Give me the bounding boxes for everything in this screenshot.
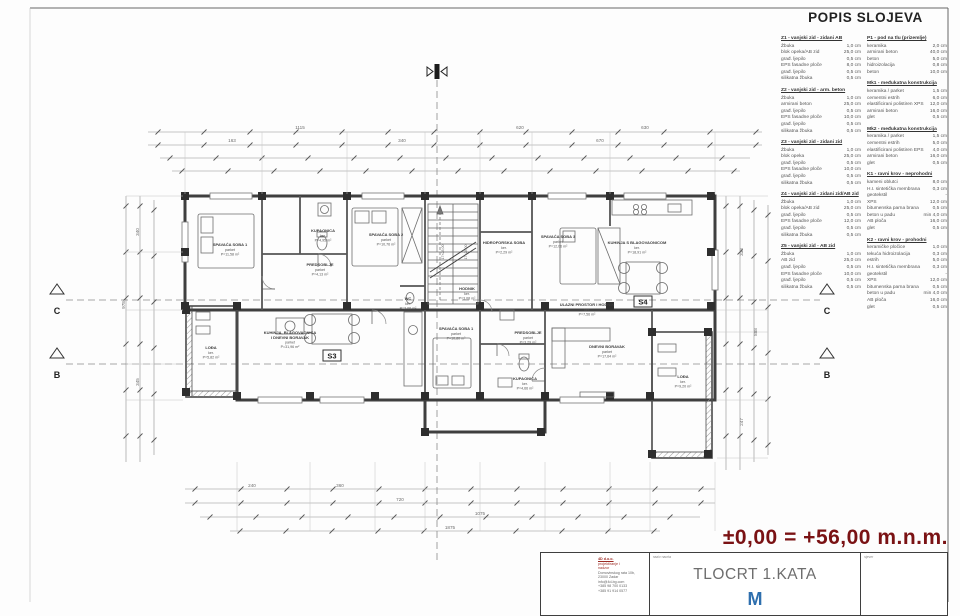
legend-item: armirani beton16,0 cm [867, 154, 947, 161]
svg-text:KUPAONICA: KUPAONICA [513, 376, 537, 381]
svg-text:P=3,29 m²: P=3,29 m² [520, 340, 537, 344]
legend-section-title: K1 - ravni krov - neprohodni [867, 172, 947, 179]
svg-text:KUHINJA S BLAGOVAONICOM: KUHINJA S BLAGOVAONICOM [608, 240, 667, 245]
svg-text:parket: parket [381, 238, 391, 242]
legend-section: Z2 - vanjski zid - arm. betonŽbuka1,0 cm… [781, 88, 861, 135]
svg-text:ker.: ker. [522, 382, 528, 386]
section-cut-icon [435, 64, 440, 79]
interior-walls [262, 196, 652, 400]
svg-text:17×28,00: 17×28,00 [464, 244, 468, 259]
svg-text:360: 360 [336, 483, 344, 488]
legend-item: armirani beton25,0 cm [781, 102, 861, 109]
room-label: SPAVAĆA SOBA 2parketP=10,76 m² [369, 232, 404, 246]
svg-text:1115: 1115 [295, 125, 305, 130]
legend-item: silikatna žbuka0,5 cm [781, 233, 861, 240]
svg-text:parket: parket [553, 240, 563, 244]
legend-item: građ. ljepilo0,5 cm [781, 226, 861, 233]
svg-text:333: 333 [739, 248, 744, 256]
svg-text:LOĐA: LOĐA [677, 374, 688, 379]
legend-item: keramičke pločice1,0 cm [867, 245, 947, 252]
room-label: HIDROFORSKA SOBAker.P=2,29 m² [483, 240, 525, 254]
legend-column-right: P1 - pod na tlu (prizemlje)keramika2,0 c… [867, 36, 947, 316]
legend-section-title: P1 - pod na tlu (prizemlje) [867, 36, 947, 43]
svg-text:340: 340 [398, 138, 406, 143]
svg-text:P=5,82 m²: P=5,82 m² [203, 355, 220, 359]
legend-section: K1 - ravni krov - neprohodnikameni oblut… [867, 172, 947, 232]
svg-text:340: 340 [135, 228, 140, 236]
company-contact: 4D d.o.o.projektiranje inadzorDomovinsko… [598, 557, 648, 593]
room-label: KUPAONICAker.P=4,66 m² [513, 376, 537, 390]
legend-item: glet0,5 cm [867, 226, 947, 233]
svg-text:ULAZNI PROSTOR I HODNIK: ULAZNI PROSTOR I HODNIK [560, 302, 615, 307]
svg-text:P=10,80 m²: P=10,80 m² [447, 336, 466, 340]
legend-item: elastificirani polistiren XPS12,0 cm [867, 102, 947, 109]
svg-text:P=11,58 m²: P=11,58 m² [221, 252, 240, 256]
elevation-note: ±0,00 = +56,00 m.n.m. [723, 526, 948, 550]
svg-text:888: 888 [753, 328, 758, 336]
svg-text:HODNIK: HODNIK [459, 286, 475, 291]
legend-item: AB zid25,0 cm [781, 258, 861, 265]
legend-item: građ. ljepilo0,5 cm [781, 174, 861, 181]
svg-text:WC: WC [405, 296, 412, 301]
room-label: SPAVAĆA SOBA 1parketP=11,58 m² [213, 242, 248, 256]
legend-item: blok opeka25,0 cm [781, 154, 861, 161]
legend-item: cementni estrih5,0 cm [867, 141, 947, 148]
legend-item: EPS fasadne ploče10,0 cm [781, 167, 861, 174]
legend-item: hidroizolacija0,8 cm [867, 63, 947, 70]
section-marker-c-left: C [54, 306, 61, 316]
legend-item: armirani beton40,0 cm [867, 50, 947, 57]
legend-section-title: K2 - ravni krov - prohodni [867, 238, 947, 245]
drawing-title: TLOCRT 1.KATA [650, 566, 860, 584]
room-label: KUHINJA S BLAGOVAONICOMker.P=18,91 m² [608, 240, 667, 254]
svg-text:SPAVAĆA SOBA 3: SPAVAĆA SOBA 3 [541, 234, 576, 239]
room-label: PREDSOBLJEparketP=3,29 m² [514, 330, 541, 344]
room-label: PREDSOBLJEparketP=4,13 m² [306, 262, 333, 276]
svg-text:978: 978 [121, 301, 126, 309]
stairs-dimension: 17×28,00 [441, 244, 445, 259]
svg-text:parket: parket [523, 336, 533, 340]
title-block-north-cell: sjever [861, 553, 947, 615]
svg-text:P=18,91 m²: P=18,91 m² [628, 250, 647, 254]
room-label: WCker.P=2,06 m² [400, 296, 417, 310]
legend-item: glet0,5 cm [867, 305, 947, 312]
svg-text:PREDSOBLJE: PREDSOBLJE [514, 330, 541, 335]
title-block-company-cell: 4D d.o.o.projektiranje inadzorDomovinsko… [541, 553, 650, 615]
legend-section-title: Z2 - vanjski zid - arm. beton [781, 88, 861, 95]
legend-item: EPS fasadne ploče10,0 cm [781, 115, 861, 122]
svg-text:345: 345 [135, 378, 140, 386]
svg-text:SPAVAĆA SOBA 1: SPAVAĆA SOBA 1 [439, 326, 474, 331]
legend-section-title: Z3 - vanjski zid - zidani zid [781, 140, 861, 147]
legend-title: POPIS SLOJEVA [788, 10, 943, 25]
svg-text:163: 163 [228, 138, 236, 143]
legend-section: Z3 - vanjski zid - zidani zidŽbuka1,0 cm… [781, 140, 861, 187]
legend-item: geotekstil- [867, 193, 947, 200]
svg-text:P=12,06 m²: P=12,06 m² [549, 244, 568, 248]
section-line-vertical [427, 64, 447, 560]
layers-legend: Z1 - vanjski zid - zidani ABŽbuka1,0 cmb… [781, 36, 947, 316]
section-marker-b-left: B [54, 370, 61, 380]
legend-item: glet0,5 cm [867, 115, 947, 122]
svg-text:P=10,76 m²: P=10,76 m² [377, 242, 396, 246]
svg-text:1075: 1075 [475, 511, 486, 516]
svg-text:S3: S3 [327, 352, 336, 361]
room-label: LOĐAker.P=9,20 m² [675, 374, 692, 388]
svg-text:P=4,13 m²: P=4,13 m² [312, 272, 329, 276]
svg-text:I DNEVNI BORAVAK: I DNEVNI BORAVAK [271, 335, 309, 340]
company-line: +385 91 914 0577 [598, 589, 648, 594]
svg-text:ker.: ker. [405, 302, 411, 306]
svg-text:ker.: ker. [464, 292, 470, 296]
svg-text:PREDSOBLJE: PREDSOBLJE [306, 262, 333, 267]
svg-text:parket: parket [225, 248, 235, 252]
room-label: DNEVNI BORAVAKparketP=17,64 m² [589, 344, 625, 358]
svg-text:LOĐA: LOĐA [205, 345, 216, 350]
legend-section: Z1 - vanjski zid - zidani ABŽbuka1,0 cmb… [781, 36, 861, 83]
legend-item: silikatna žbuka0,5 cm [781, 129, 861, 136]
svg-text:parket: parket [451, 332, 461, 336]
legend-item: silikatna žbuka0,5 cm [781, 285, 861, 292]
legend-section-title: Z1 - vanjski zid - zidani AB [781, 36, 861, 43]
legend-item: AB ploča16,0 cm [867, 298, 947, 305]
svg-text:S4: S4 [638, 298, 648, 307]
svg-text:P=9,20 m²: P=9,20 m² [675, 384, 692, 388]
furniture [196, 200, 692, 397]
unit-label-s4: S4 [634, 296, 652, 307]
legend-item: bitumenska parna brana0,5 cm [867, 206, 947, 213]
legend-item: građ. ljepilo0,5 cm [781, 122, 861, 129]
title-block-title-cell: naziv nacrta TLOCRT 1.KATA M [650, 553, 861, 615]
svg-text:ker.: ker. [501, 246, 507, 250]
section-marker-b-right: B [824, 370, 831, 380]
legend-item: beton10,0 cm [867, 70, 947, 77]
title-cell-label: naziv nacrta [653, 555, 671, 559]
svg-text:parket: parket [285, 341, 295, 345]
legend-item: kameni oblutci8,0 cm [867, 180, 947, 187]
legend-item: blok opeka/AB zid25,0 cm [781, 50, 861, 57]
svg-text:P=7,56 m²: P=7,56 m² [579, 312, 596, 316]
svg-text:ker.: ker. [208, 351, 214, 355]
legend-section-title: Z5 - vanjski zid - AB zid [781, 244, 861, 251]
legend-item: silikatna žbuka0,5 cm [781, 76, 861, 83]
legend-section: Mk2 - međukatna konstrukcijakeramika / p… [867, 127, 947, 167]
drawing-sheet: { "sheet": { "legend_title": "POPIS SLOJ… [0, 0, 960, 602]
room-label: KUPAONICAker.P=4,95 m² [311, 228, 335, 242]
svg-text:ker.: ker. [680, 380, 686, 384]
legend-item: estrih5,0 cm [867, 258, 947, 265]
legend-section: P1 - pod na tlu (prizemlje)keramika2,0 c… [867, 36, 947, 76]
svg-text:P=2,29 m²: P=2,29 m² [496, 250, 513, 254]
svg-text:SPAVAĆA SOBA 2: SPAVAĆA SOBA 2 [369, 232, 404, 237]
room-label: KUHINJA, BLAGOVAONICAI DNEVNI BORAVAKpar… [264, 330, 317, 349]
svg-text:P=4,66 m²: P=4,66 m² [517, 386, 534, 390]
legend-item: građ. ljepilo0,5 cm [781, 265, 861, 272]
svg-text:KUPAONICA: KUPAONICA [311, 228, 335, 233]
svg-text:parket: parket [315, 268, 325, 272]
legend-item: beton u padumin 4,0 cm [867, 291, 947, 298]
north-cell-label: sjever [864, 555, 873, 559]
room-label: SPAVAĆA SOBA 3parketP=12,06 m² [541, 234, 576, 248]
svg-text:HIDROFORSKA SOBA: HIDROFORSKA SOBA [483, 240, 525, 245]
legend-item: XPS12,0 cm [867, 278, 947, 285]
svg-text:630: 630 [641, 125, 649, 130]
door-arcs [262, 254, 545, 381]
scale-label: M [747, 589, 762, 610]
svg-text:ker.: ker. [634, 246, 640, 250]
unit-label-s3: S3 [323, 350, 341, 361]
legend-item: EPS fasadne ploče8,0 cm [781, 63, 861, 70]
svg-text:ker.: ker. [320, 234, 326, 238]
title-block: 4D d.o.o.projektiranje inadzorDomovinsko… [540, 552, 948, 616]
legend-section-title: Mk2 - međukatna konstrukcija [867, 127, 947, 134]
svg-text:SPAVAĆA SOBA 1: SPAVAĆA SOBA 1 [213, 242, 248, 247]
loggia-right [652, 332, 712, 458]
room-label: LOĐAker.P=5,82 m² [203, 345, 220, 359]
legend-item: glet0,5 cm [867, 161, 947, 168]
svg-text:P=3,08 m²: P=3,08 m² [459, 296, 476, 300]
legend-section: Z5 - vanjski zid - AB zidŽbuka1,0 cmAB z… [781, 244, 861, 291]
legend-section-title: Z4 - vanjski zid - zidani zid/AB zid [781, 192, 861, 199]
legend-item: keramika / parket1,5 cm [867, 89, 947, 96]
legend-item: građ. ljepilo0,5 cm [781, 278, 861, 285]
legend-section: K2 - ravni krov - prohodnikeramičke ploč… [867, 238, 947, 311]
legend-item: blok opeka/AB zid25,0 cm [781, 206, 861, 213]
svg-text:720: 720 [396, 497, 404, 502]
svg-text:parket: parket [602, 350, 612, 354]
legend-section-title: Mk1 - međukatna konstrukcija [867, 81, 947, 88]
svg-text:P=2,06 m²: P=2,06 m² [400, 306, 417, 310]
svg-text:DNEVNI BORAVAK: DNEVNI BORAVAK [589, 344, 625, 349]
room-label: HODNIKker.P=3,08 m² [459, 286, 476, 300]
legend-section: Mk1 - međukatna konstrukcijakeramika / p… [867, 81, 947, 121]
legend-item: silikatna žbuka0,5 cm [781, 181, 861, 188]
svg-text:P=31,96 m²: P=31,96 m² [281, 345, 300, 349]
svg-text:620: 620 [516, 125, 524, 130]
svg-text:P=4,95 m²: P=4,95 m² [315, 238, 332, 242]
svg-text:240: 240 [248, 483, 256, 488]
svg-text:ker.: ker. [584, 308, 590, 312]
svg-text:247: 247 [739, 418, 744, 426]
legend-column-left: Z1 - vanjski zid - zidani ABŽbuka1,0 cmb… [781, 36, 861, 316]
svg-text:670: 670 [596, 138, 604, 143]
svg-text:P=17,64 m²: P=17,64 m² [598, 354, 617, 358]
legend-item: H.I. sintetička membrana0,3 cm [867, 265, 947, 272]
svg-text:1875: 1875 [445, 525, 456, 530]
legend-section: Z4 - vanjski zid - zidani zid/AB zidŽbuk… [781, 192, 861, 239]
